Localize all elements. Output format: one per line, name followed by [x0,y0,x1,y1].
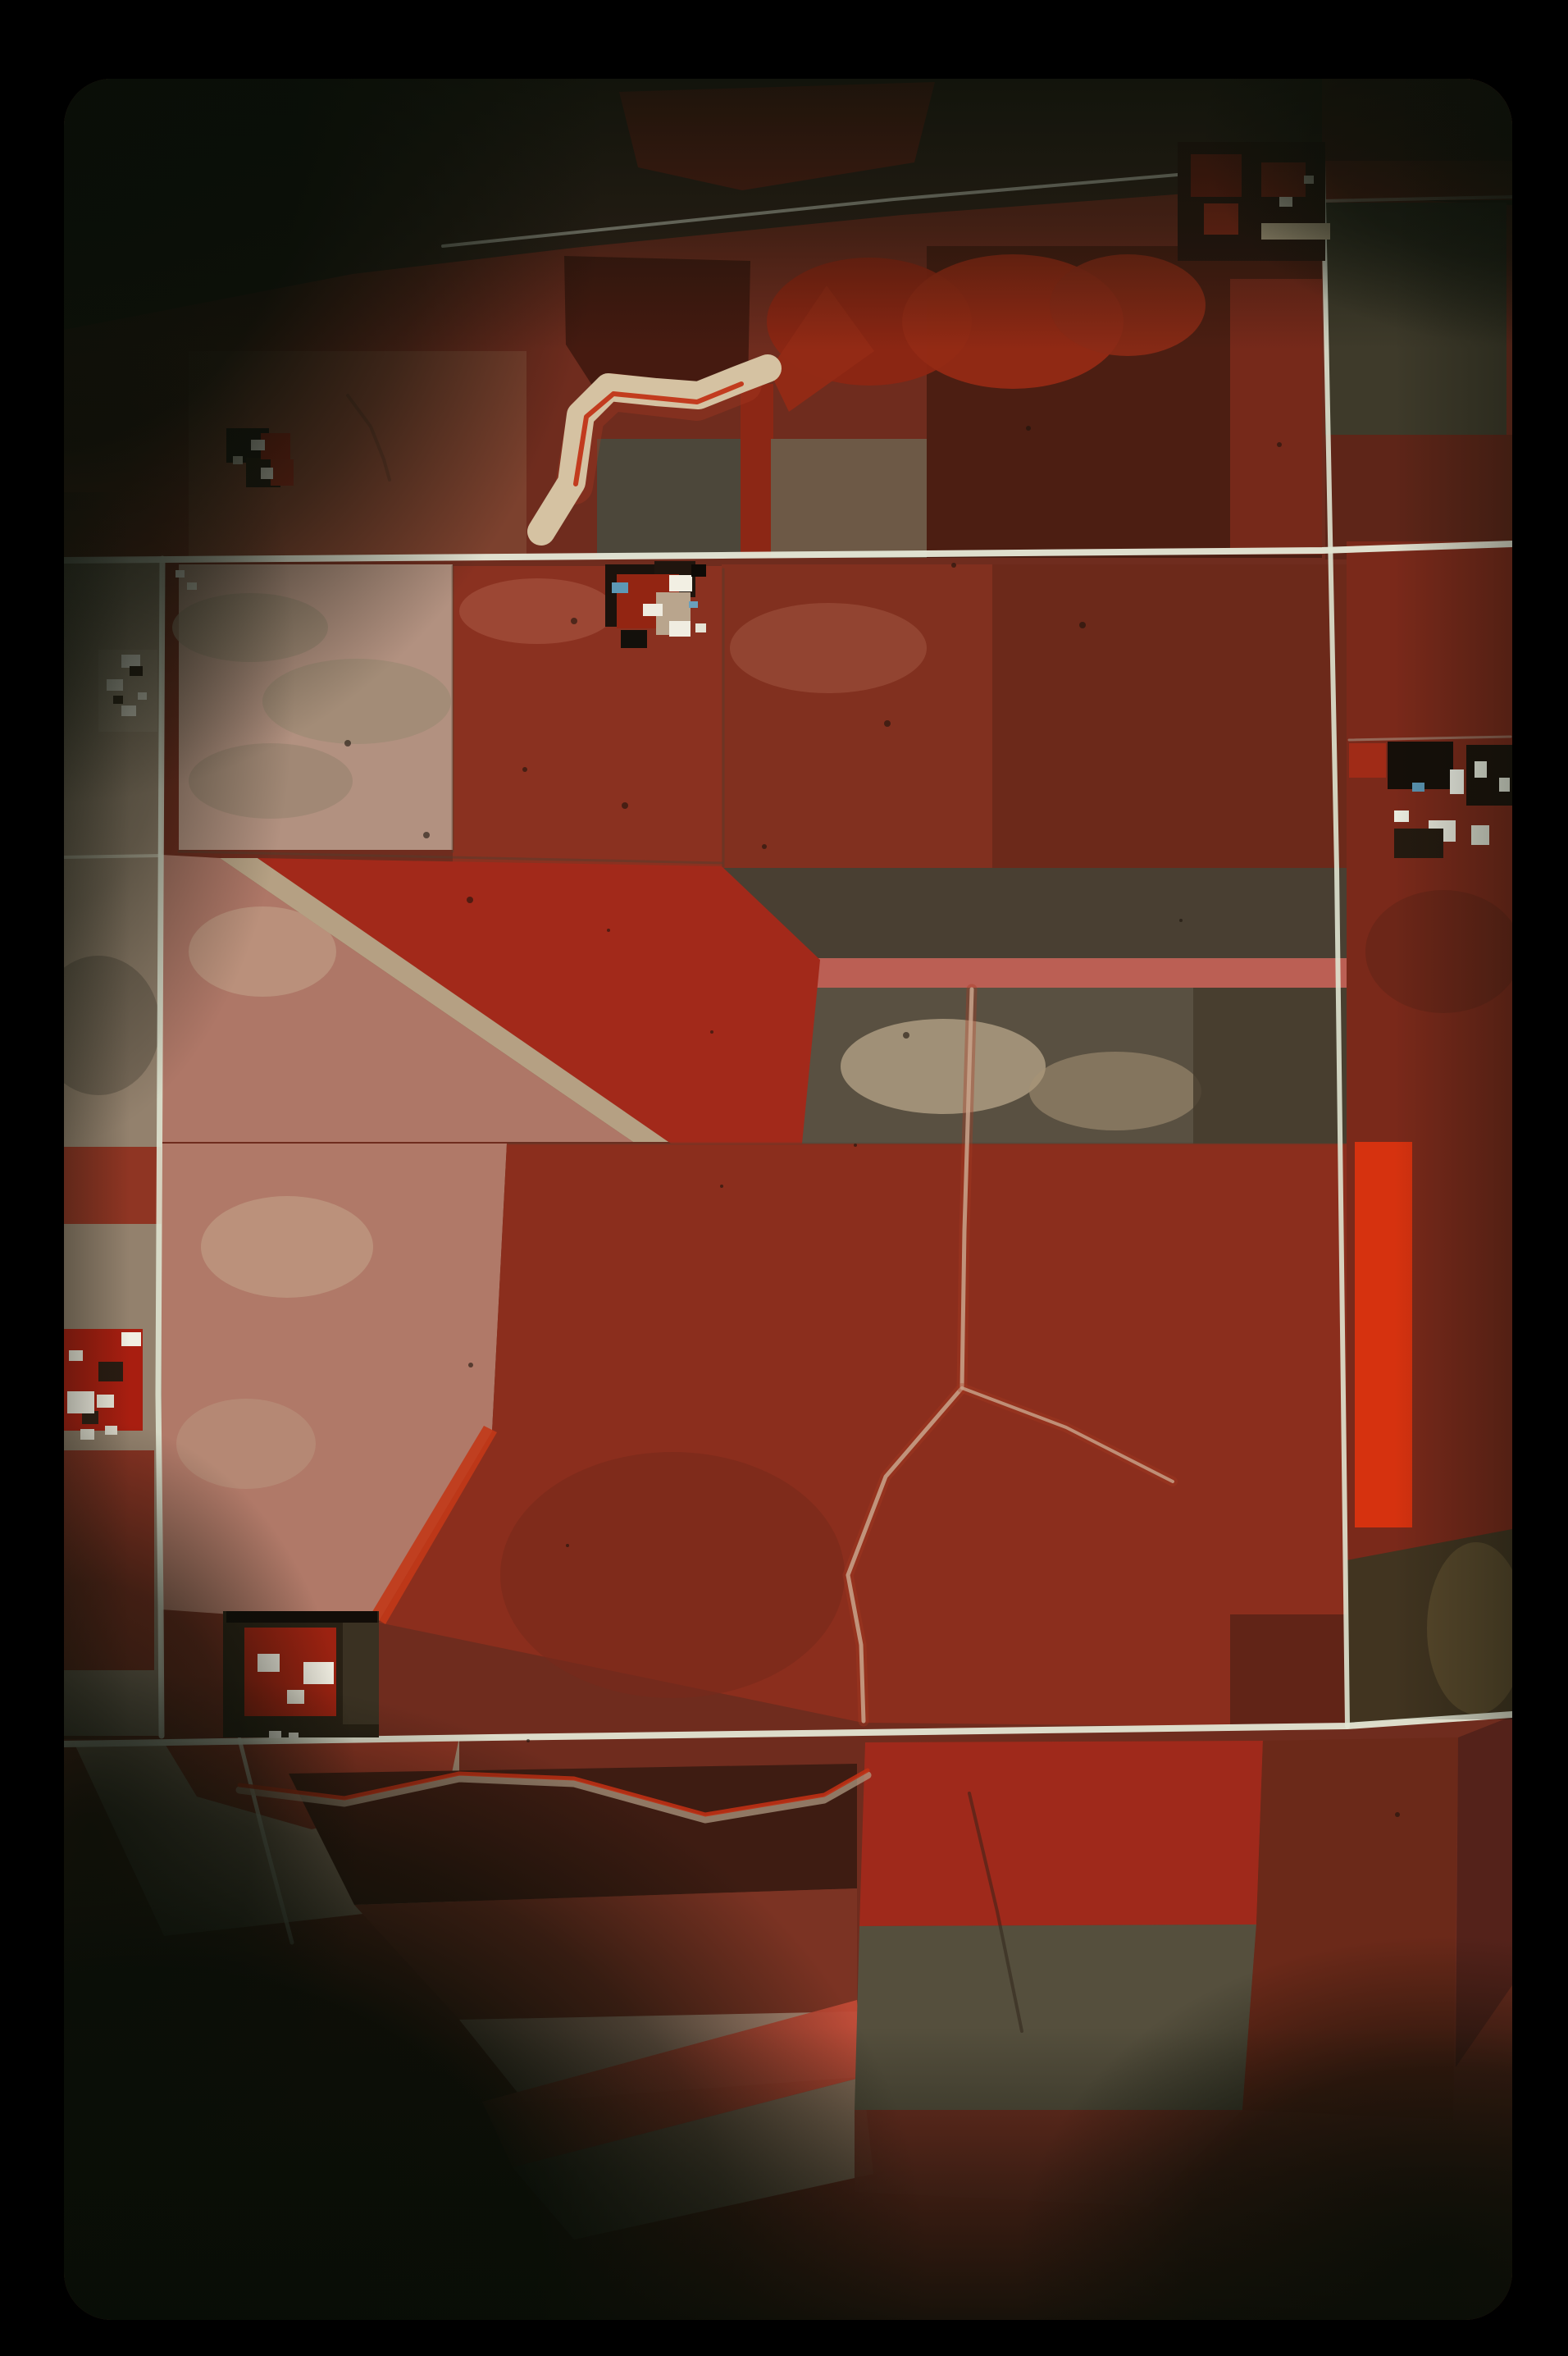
speckle [423,832,430,838]
speckle [720,1185,723,1188]
speckle [951,563,956,568]
speckle [522,767,527,772]
aerial-photograph [0,0,1568,2356]
field-below-bright-red [859,1741,1263,1926]
field-creek-red-strip [741,384,773,558]
field-gray-band-tan-b [1029,1052,1201,1130]
field-creek-olive-south [597,439,745,558]
film-slide [0,0,1568,2356]
field-pink-strip [750,958,1347,989]
farmstead-central-building [689,601,698,608]
field-mid-red-east-darker [992,564,1347,870]
speckle [1277,442,1282,447]
farmstead-central-building [695,623,706,632]
field-gray-band-tan-a [841,1019,1046,1114]
field-mid-red-east-mottle [730,603,927,693]
farmstead-central-building [691,564,706,577]
speckle [1026,426,1031,431]
speckle [854,1144,857,1147]
farmstead-central-building [621,630,647,648]
farmstead-central-building [612,582,628,593]
field-gray-band-dark-east [1193,988,1347,1144]
farmstead-central-building [643,604,663,616]
field-dark-band [712,868,1347,960]
speckle [566,1544,569,1547]
speckle [607,929,610,932]
speckle [903,1032,909,1039]
field-mid-red-west-mottle [459,578,615,644]
field-right-red-sq [1349,743,1386,778]
speckle [884,720,891,727]
speckle [710,1030,713,1034]
field-creek-graybrown-patch [771,439,927,558]
vignette-right-edge [1394,79,1512,1719]
speckle [467,897,473,903]
speckle [762,844,767,849]
photo-area [0,0,1568,2356]
speckle [344,740,351,747]
field-lower-red-dark-east [1230,1614,1347,1726]
field-lower-pink-mottle-a [201,1196,373,1298]
farmstead-central-building [669,575,692,591]
speckle [1079,622,1086,628]
speckle [622,802,628,809]
speckle [1179,919,1183,922]
field-lower-red-dark-mottle [500,1452,845,1698]
speckle [1395,1812,1400,1817]
farmstead-central-building [669,621,691,637]
speckle [571,618,577,624]
speckle [468,1363,473,1367]
speckle [526,1739,530,1742]
